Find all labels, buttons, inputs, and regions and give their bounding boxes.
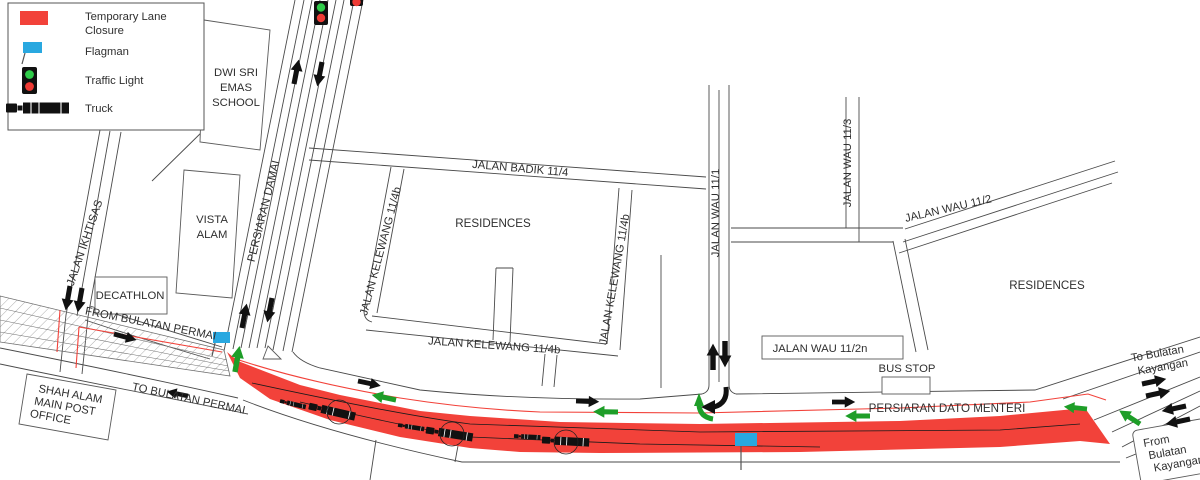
label-decathlon: DECATHLON [96, 290, 165, 302]
arrow-west-green-icon [845, 410, 870, 422]
arrow-west-green-icon [593, 406, 618, 418]
road-jalan-wau-11-2 [893, 161, 1118, 352]
traffic-plan-page: DWI SRI EMAS SCHOOL VISTA ALAM DECATHLON… [0, 0, 1200, 480]
arrow-north-icon [288, 59, 305, 86]
label-school: DWI SRI [214, 67, 258, 79]
label-jalan-wau-11-3: JALAN WAU 11/3 [842, 119, 854, 208]
traffic-light-icon [314, 1, 328, 25]
traffic-light-icon [350, 0, 363, 6]
label-to-bulatan-kayangan: To Bulatan Kayangan [1130, 343, 1189, 378]
label-kelewang-right: JALAN KELEWANG 11/4b [598, 213, 633, 346]
arrow-south-icon [261, 297, 278, 324]
arrow-south-icon [311, 61, 328, 88]
label-kelewang-left: JALAN KELEWANG 11/4b [358, 186, 404, 317]
label-jalan-badik: JALAN BADIK 11/4 [472, 159, 569, 179]
arrow-north-icon [236, 303, 253, 330]
label-jalan-wau-11-2n: JALAN WAU 11/2n [773, 343, 868, 355]
label-residences-left: RESIDENCES [455, 217, 531, 230]
traffic-light-icon [22, 67, 37, 94]
arrow-north-icon [707, 344, 720, 370]
traffic-plan-map: DWI SRI EMAS SCHOOL VISTA ALAM DECATHLON… [0, 0, 1200, 480]
label-school: SCHOOL [212, 97, 260, 109]
legend: Temporary Lane Closure Flagman Traffic L… [6, 3, 204, 130]
label-to-bulatan-permai: TO BULATAN PERMAI [131, 381, 246, 417]
svg-text:Truck: Truck [85, 103, 113, 115]
arrow-south-icon [60, 285, 76, 312]
closure-swatch [20, 11, 48, 25]
svg-text:Temporary Lane: Temporary Lane [85, 11, 167, 23]
svg-text:Flagman: Flagman [85, 46, 129, 58]
label-vista-alam: VISTA [196, 214, 228, 226]
label-bus-stop: BUS STOP [879, 363, 936, 375]
bus-stop-box [882, 377, 930, 394]
label-jalan-wau-11-1: JALAN WAU 11/1 [710, 169, 722, 258]
truck-icon [6, 103, 69, 114]
arrow-east-icon [832, 396, 855, 407]
label-persiaran-dato-menteri: PERSIARAN DATO MENTERI [869, 402, 1026, 415]
arrow-south-icon [719, 341, 732, 367]
traffic-island [263, 346, 281, 359]
svg-text:Closure: Closure [85, 25, 124, 37]
label-school: EMAS [220, 82, 252, 94]
arrow-east-icon [576, 395, 600, 407]
curved-turn-arrow-black [701, 387, 726, 414]
label-jalan-wau-11-2: JALAN WAU 11/2 [904, 193, 993, 225]
svg-text:Traffic Light: Traffic Light [85, 75, 144, 87]
label-residences-right: RESIDENCES [1009, 279, 1085, 292]
arrow-east-icon [1145, 385, 1172, 402]
arrow-east-icon [357, 375, 382, 391]
road-jalan-wau-11-3 [731, 97, 903, 242]
label-vista-alam: ALAM [197, 229, 228, 241]
label-kelewang-bottom: JALAN KELEWANG 11/4b [428, 335, 561, 356]
